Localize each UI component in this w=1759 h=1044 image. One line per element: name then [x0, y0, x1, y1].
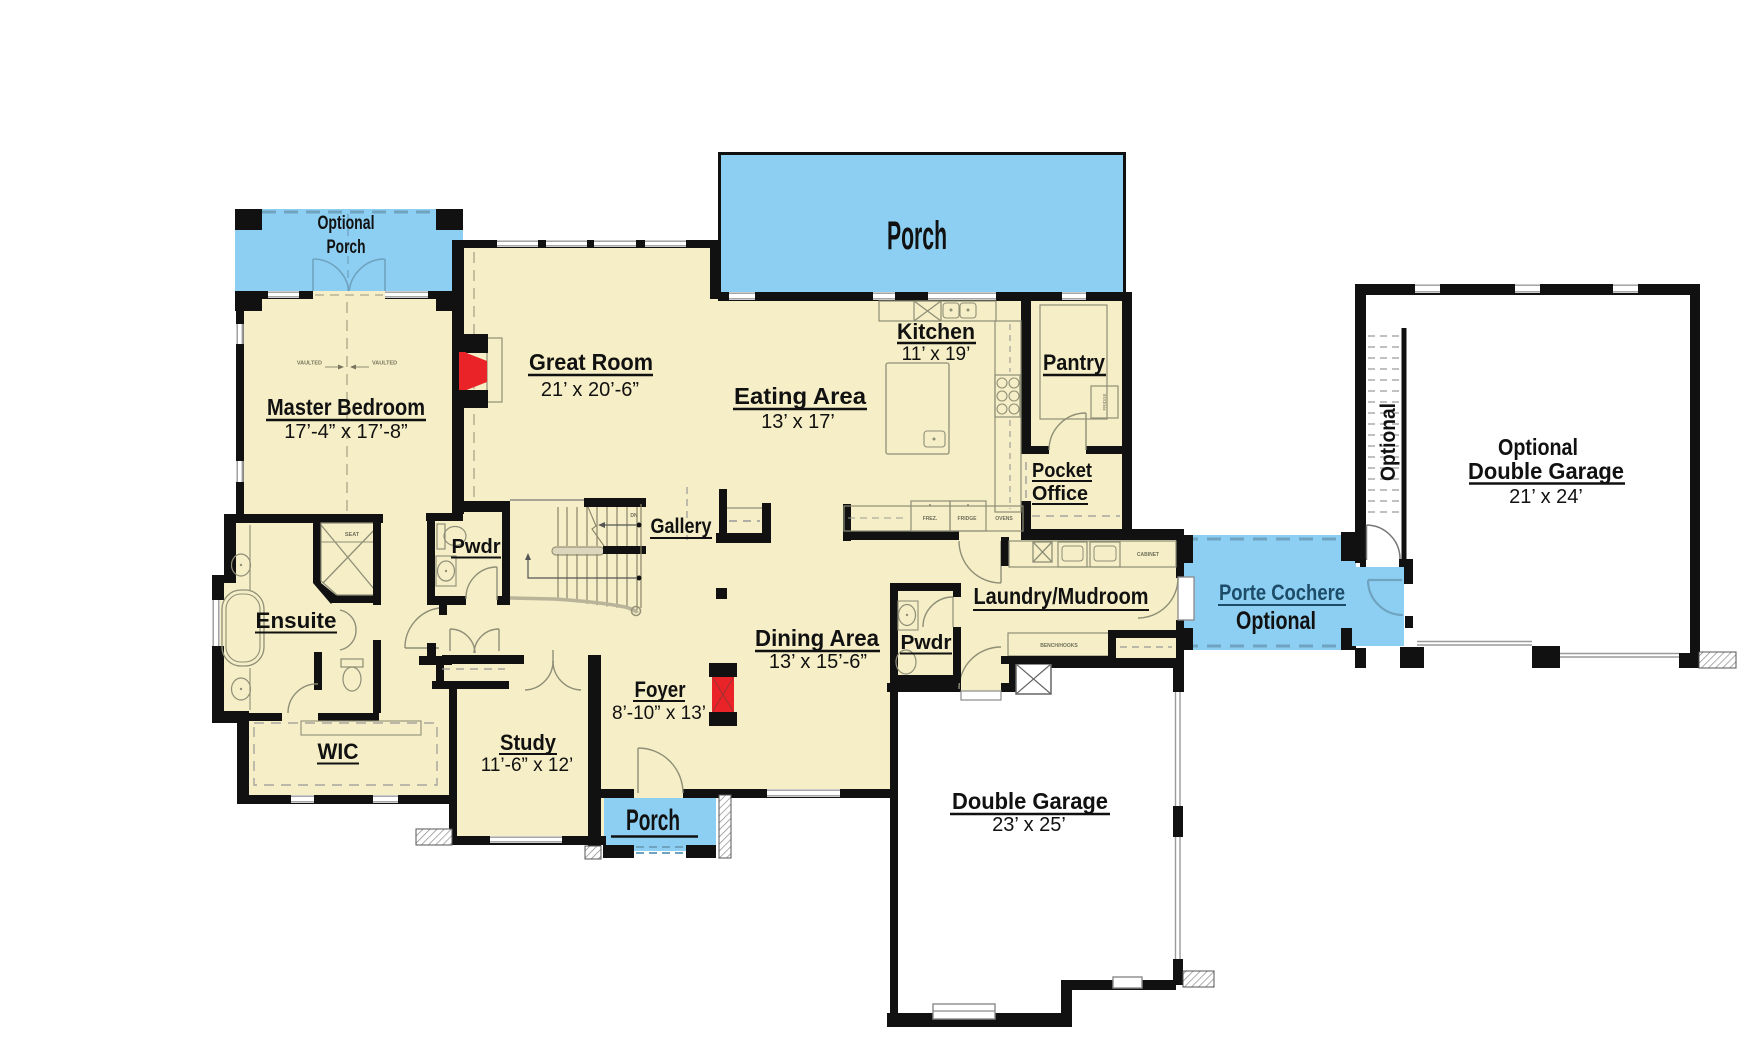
svg-text:Kitchen: Kitchen: [897, 319, 975, 344]
svg-text:11’-6” x 12’: 11’-6” x 12’: [481, 755, 574, 776]
svg-text:FRIDGE: FRIDGE: [1102, 393, 1107, 410]
svg-text:17’-4” x 17’-8”: 17’-4” x 17’-8”: [284, 421, 407, 443]
svg-text:Foyer: Foyer: [635, 677, 686, 702]
svg-text:FRIDGE: FRIDGE: [958, 516, 978, 522]
svg-text:8’-10” x 13’: 8’-10” x 13’: [612, 703, 706, 724]
svg-text:Optional: Optional: [318, 213, 375, 234]
svg-text:Master Bedroom: Master Bedroom: [267, 394, 425, 420]
svg-text:Pwdr: Pwdr: [901, 632, 952, 654]
svg-text:Porch: Porch: [626, 804, 680, 837]
svg-text:Optional: Optional: [1498, 434, 1578, 460]
svg-text:VAULTED: VAULTED: [297, 361, 322, 367]
svg-text:Double Garage: Double Garage: [1468, 458, 1624, 484]
svg-text:13’ x 15’-6”: 13’ x 15’-6”: [769, 651, 867, 673]
svg-text:Double Garage: Double Garage: [952, 788, 1108, 814]
svg-text:Study: Study: [500, 730, 557, 755]
svg-text:FREZ.: FREZ.: [923, 516, 938, 522]
svg-text:Pantry: Pantry: [1043, 350, 1106, 375]
svg-text:Ensuite: Ensuite: [256, 608, 337, 633]
svg-text:DN: DN: [630, 513, 638, 519]
svg-text:Dining Area: Dining Area: [755, 625, 879, 651]
svg-text:Laundry/Mudroom: Laundry/Mudroom: [974, 583, 1149, 609]
svg-text:Optional: Optional: [1377, 403, 1400, 481]
svg-text:WIC: WIC: [318, 739, 359, 764]
svg-text:11’ x 19’: 11’ x 19’: [902, 344, 971, 365]
svg-text:BENCH/HOOKS: BENCH/HOOKS: [1040, 643, 1078, 649]
svg-text:Porte Cochere: Porte Cochere: [1219, 580, 1345, 605]
svg-text:Office: Office: [1032, 483, 1088, 505]
svg-text:21’ x 20’-6”: 21’ x 20’-6”: [541, 379, 639, 401]
svg-text:Porch: Porch: [327, 237, 366, 258]
svg-text:Porch: Porch: [887, 214, 947, 258]
svg-text:SEAT: SEAT: [345, 532, 360, 538]
svg-text:Pocket: Pocket: [1032, 460, 1092, 482]
svg-text:VAULTED: VAULTED: [372, 361, 397, 367]
svg-text:Eating Area: Eating Area: [734, 383, 866, 409]
svg-text:CABINET: CABINET: [1137, 552, 1159, 558]
svg-text:21’ x 24’: 21’ x 24’: [1509, 486, 1583, 508]
svg-text:Pwdr: Pwdr: [452, 536, 501, 558]
svg-text:Gallery: Gallery: [651, 515, 712, 538]
svg-text:Optional: Optional: [1236, 607, 1316, 635]
svg-text:13’ x 17’: 13’ x 17’: [761, 411, 835, 433]
svg-text:23’ x 25’: 23’ x 25’: [992, 814, 1066, 836]
svg-text:Great Room: Great Room: [529, 349, 653, 375]
svg-text:OVENS: OVENS: [995, 516, 1013, 522]
